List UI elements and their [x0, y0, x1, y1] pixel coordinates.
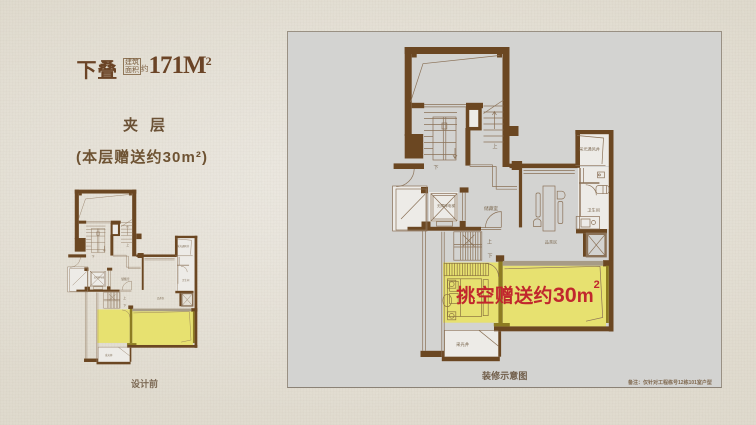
svg-text:下: 下	[488, 253, 493, 259]
svg-text:品茶区: 品茶区	[545, 239, 558, 246]
svg-text:卫生间: 卫生间	[587, 207, 600, 214]
svg-text:无障碍电梯: 无障碍电梯	[437, 203, 455, 208]
svg-text:采光井: 采光井	[456, 341, 470, 348]
svg-text:采光通风井: 采光通风井	[579, 146, 600, 153]
svg-text:下: 下	[434, 165, 439, 171]
svg-text:上: 上	[493, 143, 498, 150]
svg-text:储藏室: 储藏室	[484, 205, 498, 212]
svg-text:上: 上	[487, 239, 492, 246]
